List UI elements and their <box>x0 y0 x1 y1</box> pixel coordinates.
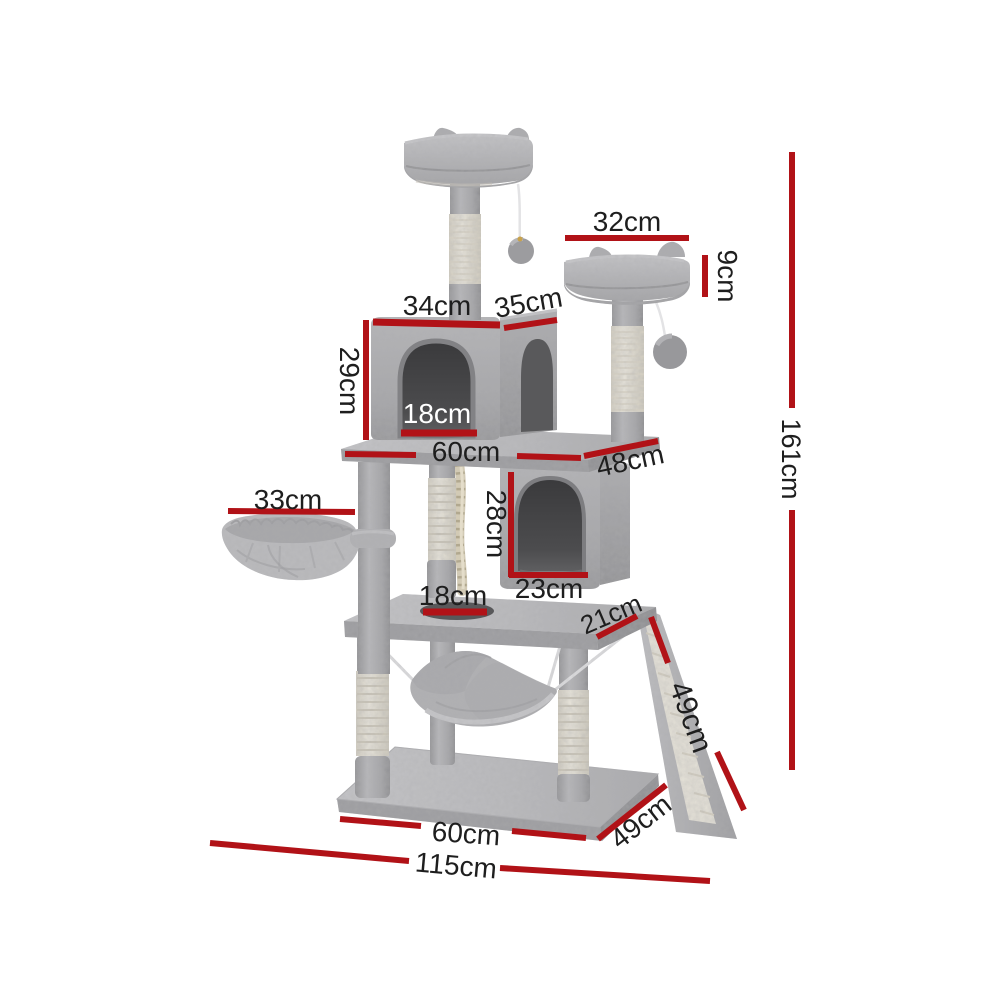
svg-text:34cm: 34cm <box>403 290 471 321</box>
svg-text:18cm: 18cm <box>403 398 471 429</box>
svg-text:32cm: 32cm <box>593 206 661 237</box>
svg-text:28cm: 28cm <box>481 490 512 558</box>
svg-text:9cm: 9cm <box>712 250 743 303</box>
svg-text:33cm: 33cm <box>254 484 322 515</box>
svg-text:18cm: 18cm <box>419 580 487 611</box>
svg-text:60cm: 60cm <box>431 816 501 852</box>
svg-text:23cm: 23cm <box>515 573 583 604</box>
svg-text:161cm: 161cm <box>776 418 806 499</box>
svg-text:29cm: 29cm <box>334 347 365 415</box>
svg-text:60cm: 60cm <box>432 436 500 467</box>
